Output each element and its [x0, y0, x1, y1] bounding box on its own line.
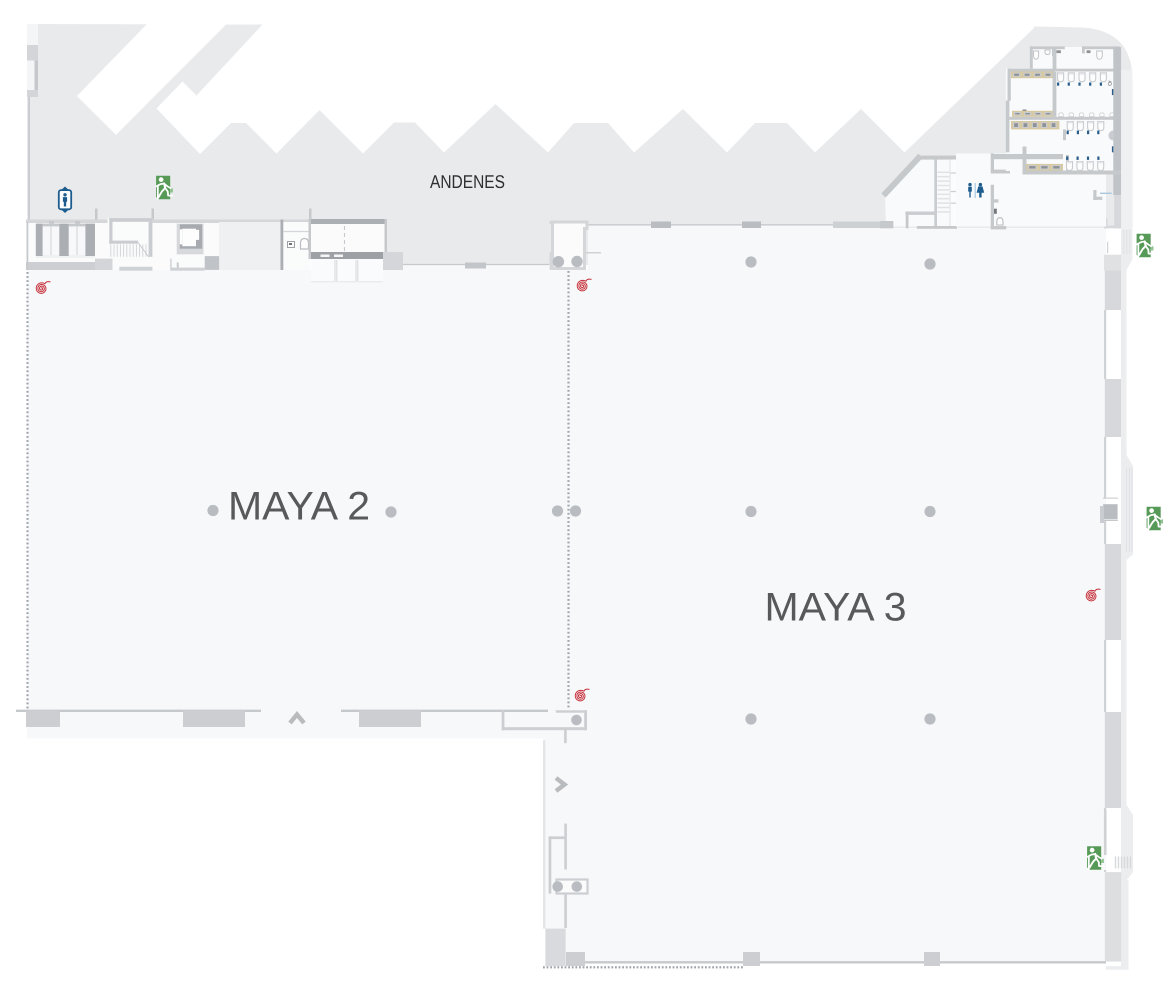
svg-text:MAYA 3: MAYA 3 [764, 586, 906, 630]
svg-text:ANDENES: ANDENES [430, 171, 505, 192]
svg-text:MAYA 2: MAYA 2 [228, 485, 370, 529]
